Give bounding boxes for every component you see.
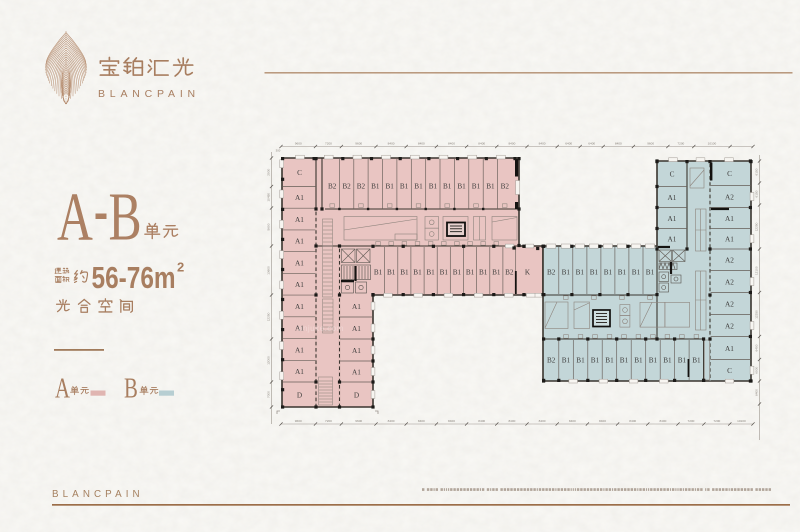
svg-text:B1: B1	[649, 357, 658, 365]
svg-text:B1: B1	[646, 269, 655, 277]
svg-text:10100: 10100	[708, 142, 717, 146]
svg-text:A2: A2	[725, 256, 734, 265]
svg-text:A1: A1	[725, 344, 734, 353]
svg-text:A1: A1	[352, 367, 361, 376]
svg-text:8400: 8400	[418, 142, 425, 146]
svg-text:56-76m: 56-76m	[92, 260, 176, 294]
svg-text:6400: 6400	[588, 142, 595, 146]
svg-text:A1: A1	[725, 214, 734, 223]
svg-text:B2: B2	[501, 183, 510, 191]
svg-text:A1: A1	[352, 346, 361, 355]
svg-text:BLANCPAIN: BLANCPAIN	[98, 88, 200, 100]
svg-text:8400: 8400	[388, 419, 395, 423]
svg-text:8400: 8400	[539, 142, 546, 146]
svg-text:C: C	[727, 169, 732, 178]
svg-text:B2: B2	[357, 183, 366, 191]
svg-text:8400: 8400	[448, 419, 455, 423]
svg-text:B1: B1	[591, 357, 600, 365]
svg-text:A1: A1	[295, 345, 304, 354]
svg-text:B1: B1	[386, 183, 395, 191]
svg-text:B1: B1	[457, 183, 466, 191]
svg-text:10100: 10100	[737, 419, 746, 423]
svg-text:A1: A1	[295, 367, 304, 376]
svg-text:C: C	[670, 170, 675, 179]
svg-text:8400: 8400	[388, 142, 395, 146]
svg-text:9600: 9600	[295, 419, 302, 423]
svg-text:8400: 8400	[418, 419, 425, 423]
svg-text:B1: B1	[400, 183, 409, 191]
svg-text:A2: A2	[725, 299, 734, 308]
svg-text:8400: 8400	[659, 419, 666, 423]
svg-text:BLANCPAIN: BLANCPAIN	[52, 489, 144, 500]
svg-text:7200: 7200	[713, 419, 720, 423]
svg-text:C: C	[297, 168, 302, 177]
svg-text:13600: 13600	[267, 266, 271, 275]
svg-text:B1: B1	[692, 357, 701, 365]
svg-text:7200: 7200	[325, 419, 332, 423]
svg-text:B1: B1	[414, 183, 423, 191]
svg-text:5600: 5600	[267, 223, 271, 230]
svg-text:7000: 7000	[267, 391, 271, 398]
svg-text:B1: B1	[443, 183, 452, 191]
svg-text:B1: B1	[562, 357, 571, 365]
svg-text:B1: B1	[429, 183, 438, 191]
svg-text:6400: 6400	[755, 389, 759, 396]
svg-text:12250: 12250	[755, 310, 759, 319]
svg-text:A1: A1	[295, 237, 304, 246]
svg-text:B1: B1	[387, 269, 396, 277]
svg-text:B1: B1	[576, 357, 585, 365]
svg-text:B1: B1	[605, 357, 614, 365]
svg-text:6150: 6150	[755, 168, 759, 175]
svg-text:8400: 8400	[448, 142, 455, 146]
svg-text:B1: B1	[466, 269, 475, 277]
svg-text:12100: 12100	[755, 266, 759, 275]
svg-text:A1: A1	[668, 235, 677, 244]
svg-text:C: C	[727, 366, 732, 375]
svg-text:7200: 7200	[325, 142, 332, 146]
svg-text:12250: 12250	[267, 312, 271, 321]
svg-text:A1: A1	[295, 215, 304, 224]
svg-text:anjuke.com: anjuke.com	[298, 324, 344, 333]
svg-text:8400: 8400	[599, 419, 606, 423]
svg-text:7200: 7200	[688, 419, 695, 423]
svg-text:2000: 2000	[267, 169, 271, 176]
svg-text:9600: 9600	[295, 142, 302, 146]
svg-text:8400: 8400	[569, 419, 576, 423]
svg-text:A1: A1	[352, 324, 361, 333]
svg-text:6400: 6400	[755, 344, 759, 351]
svg-text:8400: 8400	[508, 419, 515, 423]
svg-text:8400: 8400	[478, 419, 485, 423]
svg-text:A: A	[55, 374, 70, 405]
svg-text:A1: A1	[725, 235, 734, 244]
svg-text:6400: 6400	[565, 142, 572, 146]
svg-text:B1: B1	[678, 357, 687, 365]
svg-text:6150: 6150	[755, 190, 759, 197]
svg-text:300: 300	[276, 149, 281, 153]
svg-text:B1: B1	[634, 357, 643, 365]
svg-text:B1: B1	[632, 269, 641, 277]
svg-text:B1: B1	[620, 357, 629, 365]
svg-text:B: B	[124, 374, 138, 405]
svg-text:12250: 12250	[755, 222, 759, 231]
svg-text:B2: B2	[547, 357, 556, 365]
svg-text:10450: 10450	[267, 193, 271, 202]
svg-text:B1: B1	[492, 269, 501, 277]
svg-text:B1: B1	[400, 269, 409, 277]
svg-text:7200: 7200	[677, 142, 684, 146]
svg-text:B1: B1	[440, 269, 449, 277]
svg-text:B1: B1	[479, 269, 488, 277]
svg-text:A1: A1	[295, 280, 304, 289]
svg-text:8400: 8400	[615, 142, 622, 146]
svg-text:B1: B1	[426, 269, 435, 277]
svg-text:2: 2	[177, 260, 184, 275]
svg-text:D: D	[297, 390, 302, 399]
svg-text:B1: B1	[472, 183, 481, 191]
svg-text:A1: A1	[352, 302, 361, 311]
svg-text:A2: A2	[725, 321, 734, 330]
svg-text:A2: A2	[725, 192, 734, 201]
svg-text:B2: B2	[328, 183, 337, 191]
svg-text:B1: B1	[576, 269, 585, 277]
svg-text:B1: B1	[562, 269, 571, 277]
svg-text:9600: 9600	[355, 142, 362, 146]
svg-text:B2: B2	[547, 269, 556, 277]
svg-text:B1: B1	[374, 269, 383, 277]
svg-text:B1: B1	[486, 183, 495, 191]
svg-text:D: D	[354, 390, 359, 399]
svg-text:B1: B1	[590, 269, 599, 277]
svg-text:A2: A2	[725, 277, 734, 286]
svg-text:K: K	[525, 269, 531, 277]
svg-text:B1: B1	[453, 269, 462, 277]
svg-text:B1: B1	[413, 269, 422, 277]
svg-text:A1: A1	[668, 193, 677, 202]
svg-text:A: A	[57, 179, 93, 256]
svg-text:12000: 12000	[267, 356, 271, 365]
svg-text:A1: A1	[295, 302, 304, 311]
svg-text:B: B	[109, 179, 142, 256]
svg-text:B2: B2	[342, 183, 351, 191]
svg-text:B1: B1	[604, 269, 613, 277]
svg-text:B1: B1	[371, 183, 380, 191]
svg-text:B1: B1	[618, 269, 627, 277]
svg-text:A1: A1	[668, 214, 677, 223]
svg-text:9600: 9600	[355, 419, 362, 423]
svg-text:8400: 8400	[478, 142, 485, 146]
svg-text:8400: 8400	[629, 419, 636, 423]
svg-text:8400: 8400	[508, 142, 515, 146]
svg-text:6000: 6000	[755, 367, 759, 374]
svg-text:8400: 8400	[539, 419, 546, 423]
svg-text:B2: B2	[505, 269, 514, 277]
svg-text:A1: A1	[295, 258, 304, 267]
svg-text:9600: 9600	[647, 142, 654, 146]
svg-text:B1: B1	[663, 357, 672, 365]
svg-text:A1: A1	[295, 193, 304, 202]
